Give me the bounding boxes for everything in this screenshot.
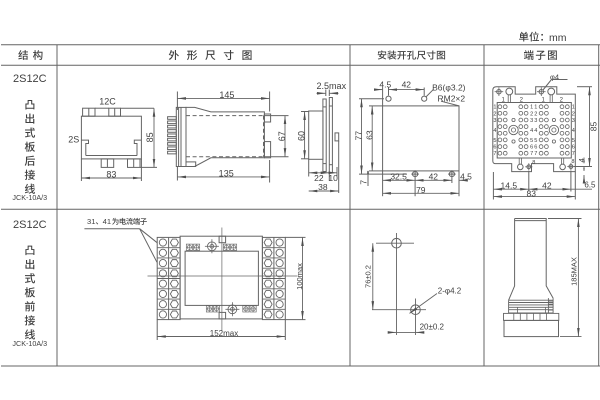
svg-text:10: 10 — [328, 173, 338, 183]
svg-text:2: 2 — [493, 111, 496, 117]
svg-text:2S12C: 2S12C — [13, 219, 47, 231]
svg-text:76±0.2: 76±0.2 — [364, 265, 373, 288]
svg-text:67: 67 — [277, 131, 287, 141]
svg-text:42: 42 — [542, 181, 552, 191]
svg-text:2: 2 — [534, 111, 537, 117]
svg-text:4: 4 — [534, 128, 537, 134]
svg-text:38: 38 — [318, 182, 328, 192]
svg-text:3: 3 — [534, 118, 537, 124]
svg-text:4: 4 — [530, 128, 533, 134]
svg-text:RM2×2: RM2×2 — [437, 94, 465, 104]
svg-text:77: 77 — [354, 131, 364, 141]
svg-text:6.5: 6.5 — [584, 181, 596, 190]
svg-text:4.5: 4.5 — [460, 171, 472, 181]
svg-text:85: 85 — [589, 122, 599, 132]
svg-text:mm: mm — [549, 32, 567, 44]
svg-text:4: 4 — [577, 158, 586, 162]
svg-text:1: 1 — [534, 105, 537, 111]
svg-text:B6(φ3.2): B6(φ3.2) — [432, 82, 466, 92]
svg-text:JCK-10A/3: JCK-10A/3 — [12, 339, 47, 348]
svg-text:2S: 2S — [68, 135, 79, 145]
svg-text:2S12C: 2S12C — [13, 73, 47, 85]
svg-text:85: 85 — [145, 132, 155, 142]
svg-text:4.5: 4.5 — [379, 80, 391, 90]
svg-text:1: 1 — [572, 105, 575, 111]
svg-text:42: 42 — [429, 171, 439, 181]
svg-text:100max: 100max — [295, 263, 304, 290]
svg-text:42: 42 — [402, 80, 412, 90]
svg-text:7: 7 — [572, 151, 575, 157]
svg-text:7: 7 — [358, 180, 368, 185]
svg-text:8: 8 — [532, 160, 535, 166]
svg-text:6: 6 — [572, 145, 575, 151]
svg-text:3: 3 — [530, 118, 533, 124]
svg-text:41: 41 — [103, 217, 111, 226]
svg-text:60: 60 — [296, 131, 306, 141]
svg-text:6: 6 — [530, 145, 533, 151]
svg-text:7: 7 — [530, 151, 533, 157]
svg-text:14.5: 14.5 — [501, 181, 518, 191]
svg-text:5: 5 — [572, 138, 575, 144]
svg-text:2: 2 — [572, 111, 575, 117]
svg-text:83: 83 — [106, 170, 116, 180]
svg-text:63: 63 — [364, 130, 374, 140]
svg-text:2-φ4.2: 2-φ4.2 — [438, 286, 462, 295]
svg-text:8: 8 — [571, 159, 574, 165]
svg-text:2: 2 — [530, 111, 533, 117]
svg-text:1: 1 — [493, 105, 496, 111]
svg-text:4: 4 — [572, 128, 575, 134]
svg-text:185MAX: 185MAX — [569, 257, 578, 286]
svg-text:5: 5 — [530, 138, 533, 144]
svg-text:135: 135 — [219, 168, 234, 178]
svg-text:145: 145 — [219, 90, 234, 100]
svg-text:3: 3 — [493, 118, 496, 124]
svg-text:83: 83 — [526, 188, 536, 198]
svg-text:4: 4 — [493, 128, 496, 134]
svg-text:20±0.2: 20±0.2 — [420, 322, 445, 331]
svg-text:5: 5 — [493, 138, 496, 144]
svg-text:2.5max: 2.5max — [317, 81, 347, 91]
svg-text:3: 3 — [572, 118, 575, 124]
svg-text:152max: 152max — [210, 329, 238, 338]
svg-text:JCK-10A/3: JCK-10A/3 — [12, 193, 47, 202]
svg-text:31: 31 — [87, 217, 95, 226]
svg-text:5: 5 — [534, 138, 537, 144]
svg-text:79: 79 — [416, 185, 426, 195]
svg-text:6: 6 — [493, 145, 496, 151]
svg-text:6: 6 — [534, 145, 537, 151]
svg-text:7: 7 — [534, 151, 537, 157]
svg-text:12C: 12C — [99, 96, 116, 106]
svg-text:1: 1 — [530, 105, 533, 111]
svg-text:32.5: 32.5 — [390, 171, 407, 181]
svg-text:7: 7 — [493, 151, 496, 157]
